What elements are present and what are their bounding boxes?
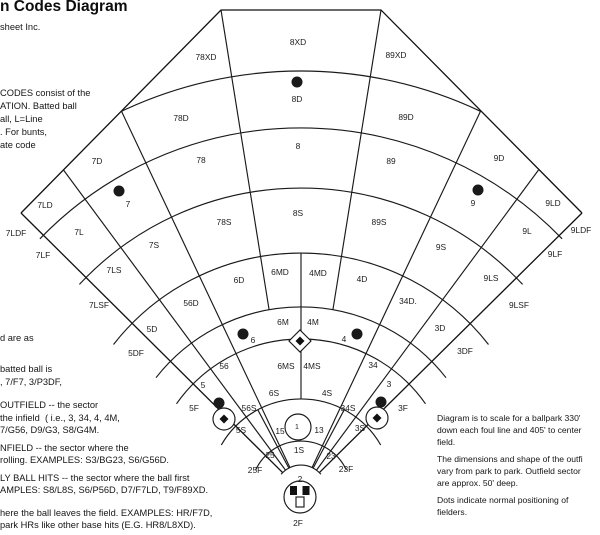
sector-label-34: 34 [368,360,378,370]
sector-label-5S: 5S [236,425,247,435]
sector-label-89S: 89S [372,217,387,227]
sector-label-7LSF: 7LSF [89,300,109,310]
text-line: LY BALL HITS -- the sector where the bal… [0,472,189,484]
text-line: OUTFIELD -- the sector [0,399,98,411]
sector-label-1S: 1S [294,445,305,455]
text-line: park HRs like other base hits (E.G. HR8/… [0,519,196,531]
sector-label-6S: 6S [269,388,280,398]
text-line: The dimensions and shape of the outfi [437,453,583,465]
sector-label-5: 5 [201,380,206,390]
sector-label-8XD: 8XD [290,37,306,47]
sector-label-15: 15 [275,426,285,436]
sector-label-7LS: 7LS [107,265,122,275]
sector-label-56: 56 [219,361,229,371]
arc-d-mid-boundary [40,128,562,239]
sector-label-25F: 25F [248,465,262,475]
sector-label-3DF: 3DF [457,346,473,356]
sector-label-5DF: 5DF [128,348,144,358]
sector-label-7: 7 [126,199,131,209]
sector-label-9LDF: 9LDF [571,225,591,235]
sector-label-2F: 2F [293,518,303,528]
text-line: rolling. EXAMPLES: S3/BG23, S6/G56D. [0,454,169,466]
text-line: CODES consist of the [0,87,90,99]
sector-label-3D: 3D [435,323,446,333]
location-codes-diagram-page: 78XD8XD89XD78D8D89D7D788899D7LD778S8S89S… [0,0,600,535]
sector-label-9D: 9D [494,153,505,163]
sector-label-56S: 56S [242,403,257,413]
sector-label-6: 6 [251,335,256,345]
text-line: AMPLES: S8/L8S, S6/P56D, D7/F7LD, T9/F89… [0,484,208,496]
text-line: ate code [0,139,36,151]
sector-label-23F: 23F [339,464,353,474]
sector-label-6MS: 6MS [277,361,295,371]
sector-label-34D.: 34D. [399,296,417,306]
right-batter-box [303,486,310,495]
sector-label-89XD: 89XD [386,50,407,60]
sector-label-7S: 7S [149,240,160,250]
fielder-dot-center-fielder-8 [292,77,303,88]
sector-label-7L: 7L [74,227,84,237]
sector-label-78XD: 78XD [196,52,217,62]
sector-label-13: 13 [314,425,324,435]
catcher-box [296,497,304,507]
sector-label-3: 3 [387,379,392,389]
text-line: vary from park to park. Outfield sector [437,465,581,477]
text-line: batted ball is [0,363,52,375]
text-line: all, L=Line [0,113,43,125]
sector-label-4D: 4D [357,274,368,284]
text-line: ATION. Batted ball [0,100,77,112]
radial-7-78-boundary [122,111,290,467]
sector-label-7LDF: 7LDF [6,228,26,238]
sector-label-6M: 6M [277,317,289,327]
text-line: Dots indicate normal positioning of [437,494,568,506]
arc-home-area [281,465,321,474]
arc-xd-d-boundary [122,71,481,111]
sector-label-9S: 9S [436,242,447,252]
sector-label-8S: 8S [293,208,304,218]
fielder-dots-group [114,77,484,409]
text-line: Diagram is to scale for a ballpark 330' [437,412,581,424]
fielder-dot-third-baseman-5 [214,398,225,409]
fielder-dot-first-baseman-3 [376,397,387,408]
sector-label-4MD: 4MD [309,268,327,278]
sector-label-9LF: 9LF [548,249,562,259]
sector-label-8D: 8D [292,94,303,104]
sector-label-89: 89 [386,156,396,166]
sector-label-9L: 9L [522,226,532,236]
text-line: the infield ( i.e., 3, 34, 4, 4M, [0,412,120,424]
sector-label-9LS: 9LS [484,273,499,283]
sector-label-78D: 78D [173,113,188,123]
sector-label-4: 4 [342,334,347,344]
fielder-dot-shortstop-6 [238,329,249,340]
sector-label-4S: 4S [322,388,333,398]
sector-label-56D: 56D [183,298,198,308]
text-line: are approx. 50' deep. [437,477,518,489]
sector-label-7LD: 7LD [37,200,52,210]
sector-label-89D: 89D [398,112,413,122]
sector-label-6D: 6D [234,275,245,285]
fielder-dot-left-fielder-7 [114,186,125,197]
left-batter-box [290,486,297,495]
sector-label-34S: 34S [341,403,356,413]
sector-label-7D: 7D [92,156,103,166]
text-line: field. [437,436,455,448]
sector-label-5D: 5D [147,324,158,334]
page-title: n Codes Diagram [0,0,127,16]
sector-label-23: 23 [326,451,336,461]
sector-label-3F: 3F [398,403,408,413]
sector-label-9: 9 [471,198,476,208]
sector-label-78S: 78S [217,217,232,227]
text-line: . For bunts, [0,126,47,138]
sector-label-9LSF: 9LSF [509,300,529,310]
fielder-dot-right-fielder-9 [473,185,484,196]
text-line: here the ball leaves the field. EXAMPLES… [0,507,212,519]
sector-label-4M: 4M [307,317,319,327]
sector-label-78: 78 [196,155,206,165]
text-line: NFIELD -- the sector where the [0,442,129,454]
sector-label-7LF: 7LF [36,250,50,260]
sector-label-6MD: 6MD [271,267,289,277]
sector-label-9LD: 9LD [545,198,560,208]
text-line: , 7/F7, 3/P3DF, [0,376,62,388]
page-subtitle: sheet Inc. [0,22,40,32]
sector-label-2: 2 [298,474,303,484]
sector-label-5F: 5F [189,403,199,413]
sector-label-1: 1 [295,424,299,431]
sector-label-25: 25 [265,450,275,460]
sector-label-4MS: 4MS [303,361,321,371]
fielder-dot-second-baseman-4 [352,329,363,340]
text-line: down each foul line and 405' to center [437,424,582,436]
sector-label-8: 8 [296,141,301,151]
text-line: 7/G56, D9/G3, S8/G4M. [0,424,99,436]
text-line: fielders. [437,506,467,518]
text-line: d are as [0,332,34,344]
sector-label-3S: 3S [355,423,366,433]
